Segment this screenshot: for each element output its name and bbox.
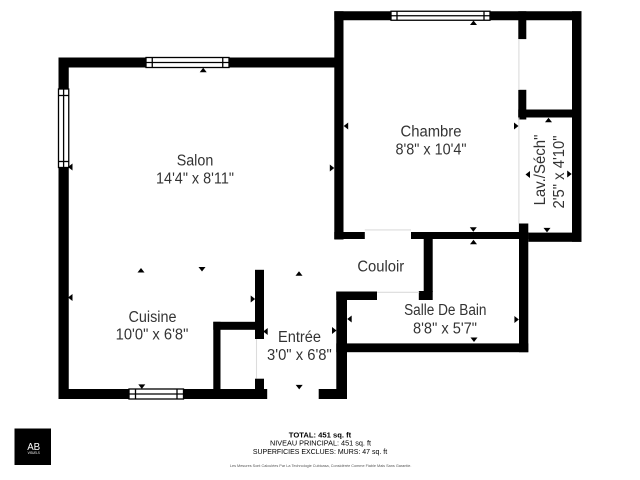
svg-text:Cuisine: Cuisine xyxy=(129,309,177,326)
svg-text:SUPERFICIES EXCLUES: MURS: 47: SUPERFICIES EXCLUES: MURS: 47 sq. ft xyxy=(253,447,387,456)
svg-text:Salle De Bain: Salle De Bain xyxy=(404,302,486,319)
svg-text:Les Mesures Sont Calculées Par: Les Mesures Sont Calculées Par La Techno… xyxy=(230,464,412,468)
svg-text:Salon: Salon xyxy=(177,153,214,170)
svg-text:2'5" x 4'10": 2'5" x 4'10" xyxy=(551,135,568,208)
svg-text:8'8" x 5'7": 8'8" x 5'7" xyxy=(413,321,477,338)
svg-text:Entrée: Entrée xyxy=(278,329,321,346)
svg-text:Lav./Séch": Lav./Séch" xyxy=(532,135,549,206)
svg-text:14'4" x 8'11": 14'4" x 8'11" xyxy=(156,171,234,188)
svg-text:VISUELS: VISUELS xyxy=(28,451,40,455)
svg-text:8'8" x 10'4": 8'8" x 10'4" xyxy=(395,142,466,159)
svg-text:3'0" x 6'8": 3'0" x 6'8" xyxy=(267,347,332,364)
svg-text:10'0" x 6'8": 10'0" x 6'8" xyxy=(116,327,189,344)
svg-text:Chambre: Chambre xyxy=(401,123,462,140)
svg-text:Couloir: Couloir xyxy=(357,258,404,275)
